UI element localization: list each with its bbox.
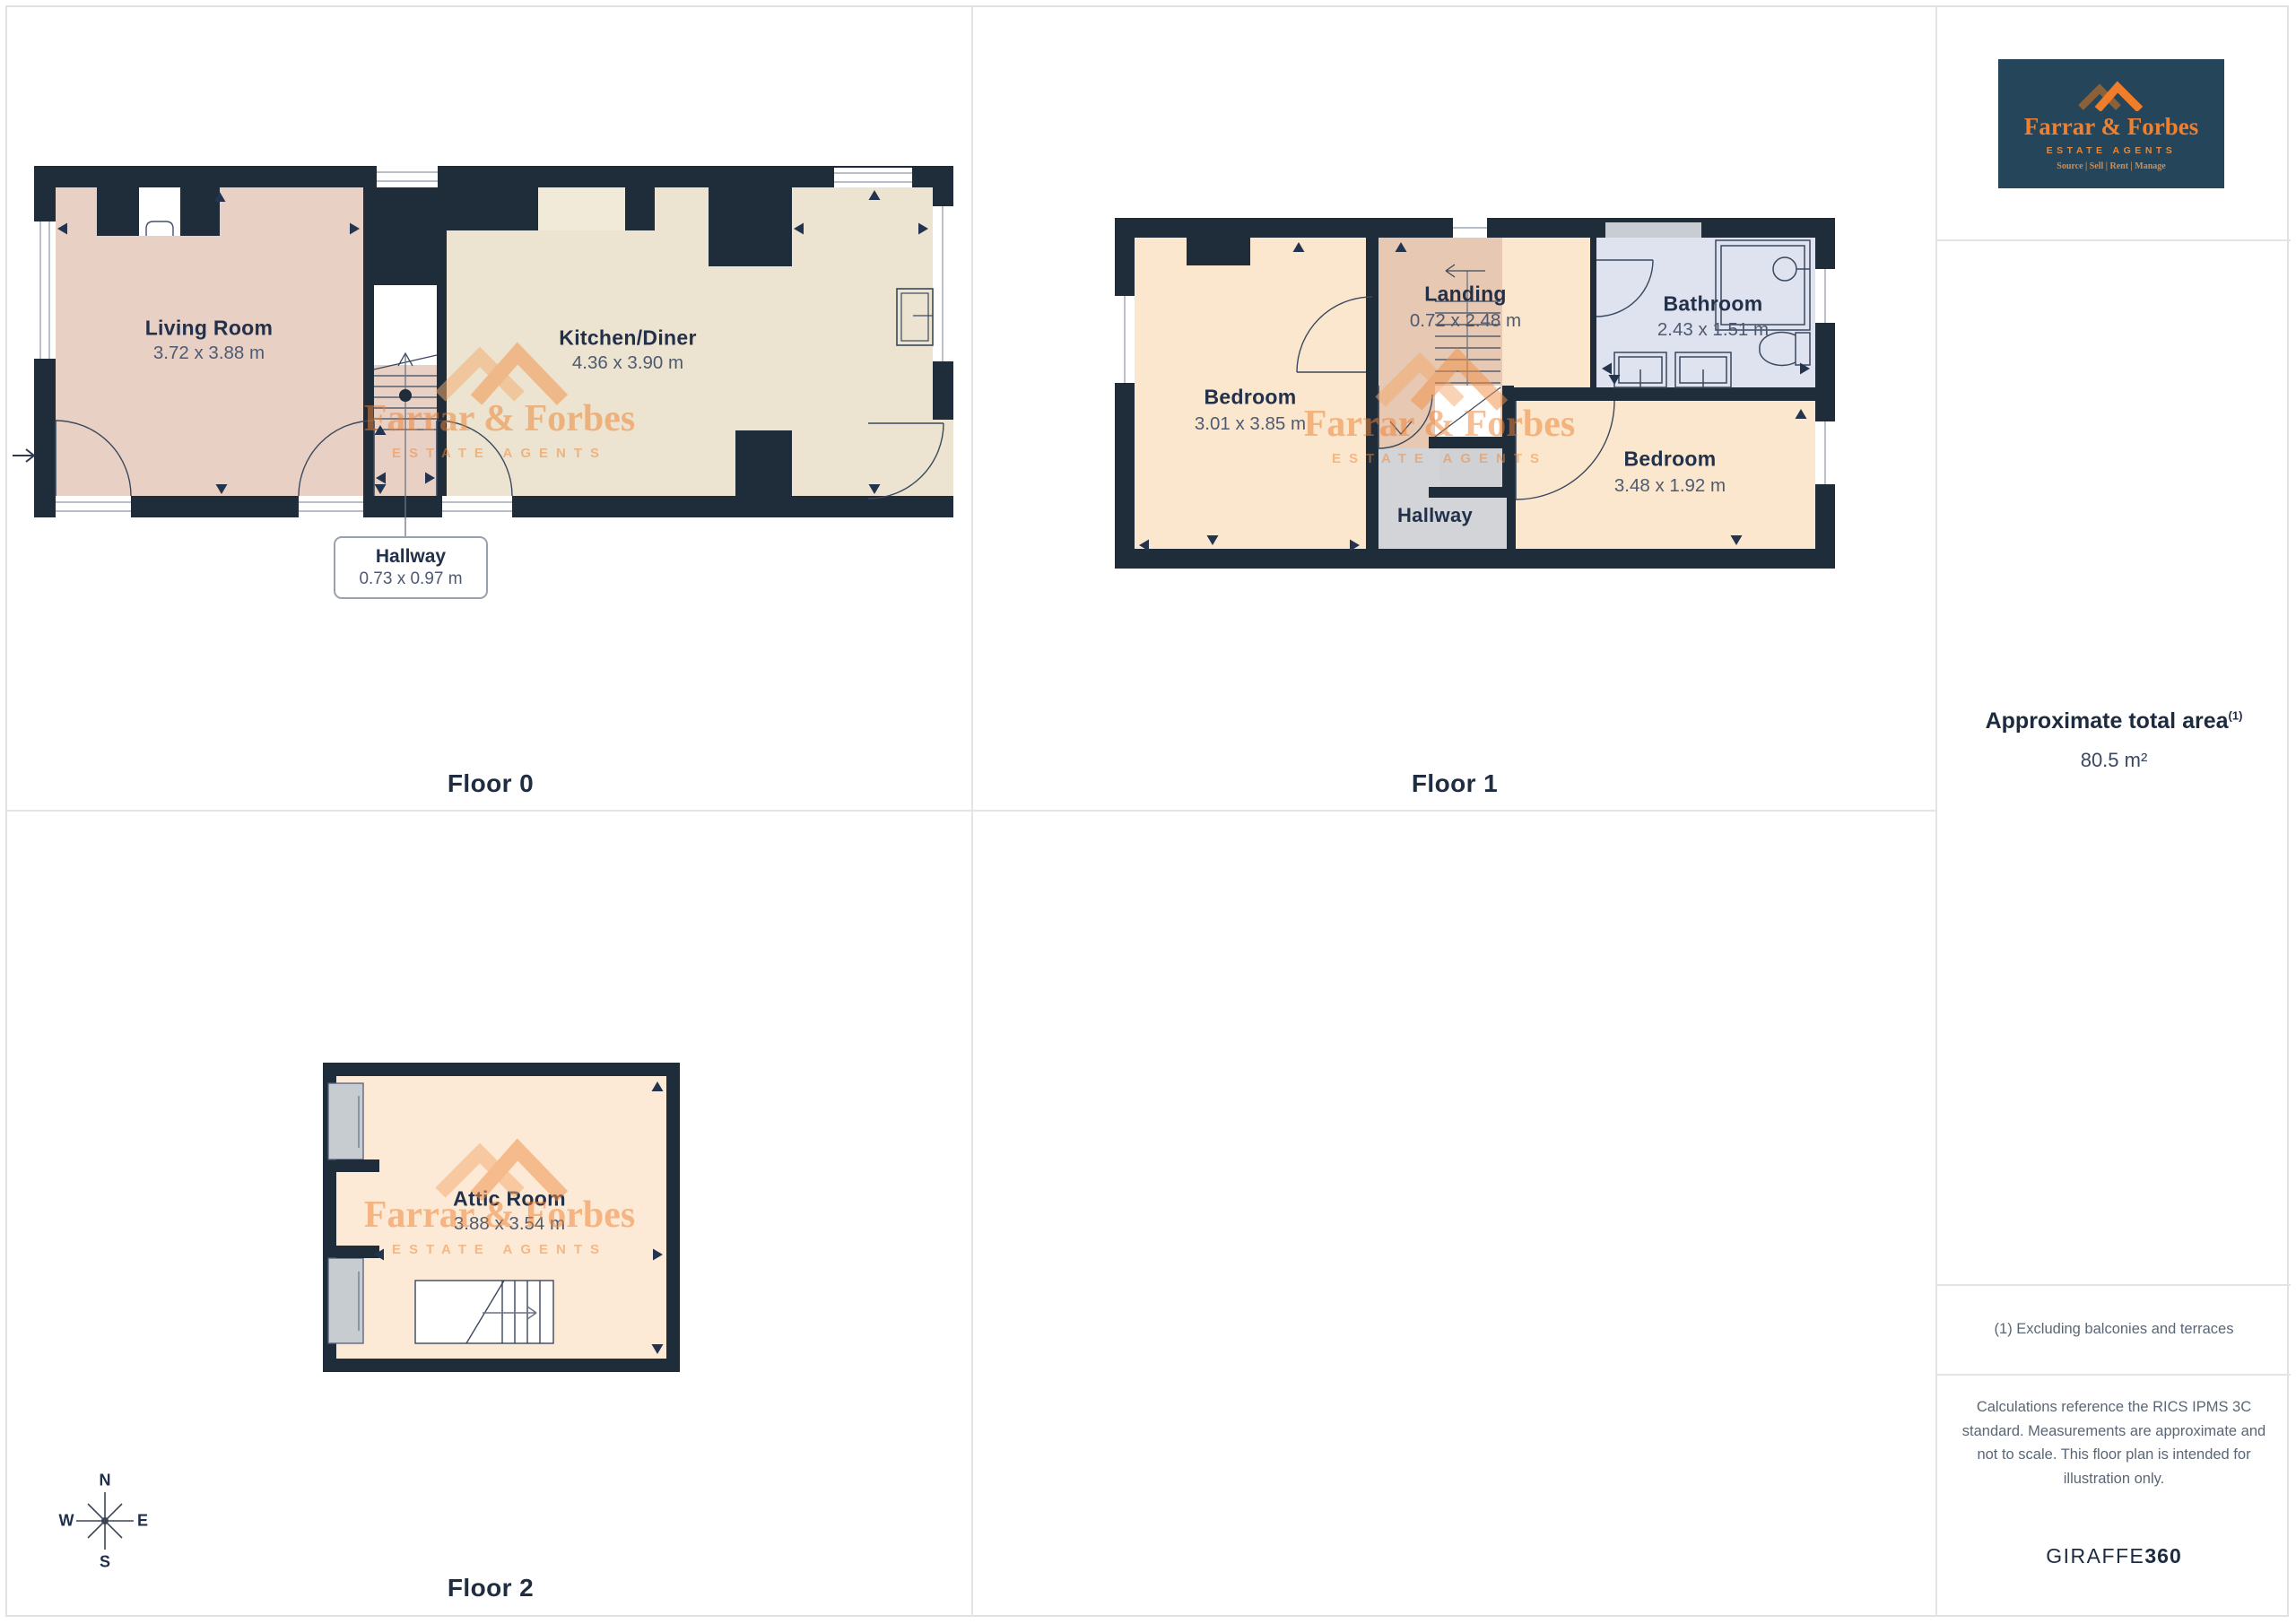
compass-east-label: E bbox=[137, 1512, 148, 1531]
giraffe360-suffix: 360 bbox=[2144, 1544, 2181, 1568]
floor-2-label: Floor 2 bbox=[448, 1574, 534, 1602]
room-label-hallway-f1: Hallway bbox=[1397, 504, 1473, 527]
room-label-attic-room: Attic Room bbox=[453, 1187, 566, 1211]
agency-subtitle: ESTATE AGENTS bbox=[2047, 145, 2177, 156]
room-label-living-room: Living Room bbox=[145, 317, 274, 341]
roof-logo-icon bbox=[2070, 77, 2152, 111]
room-dims-kitchen-diner: 4.36 x 3.90 m bbox=[572, 352, 683, 374]
floorplan-graphics bbox=[0, 0, 2296, 1624]
agency-logo: Farrar & Forbes ESTATE AGENTS Source | S… bbox=[1998, 59, 2224, 188]
room-dims-bedroom-right: 3.48 x 1.92 m bbox=[1614, 475, 1726, 497]
total-area-heading-text: Approximate total area bbox=[1986, 708, 2229, 734]
agency-tagline: Source | Sell | Rent | Manage bbox=[2057, 161, 2165, 171]
agency-name: Farrar & Forbes bbox=[2024, 115, 2198, 139]
footnote-block: (1) Excluding balconies and terraces bbox=[1937, 1285, 2291, 1374]
footnote-text: (1) Excluding balconies and terraces bbox=[1995, 1321, 2234, 1338]
hallway-callout: Hallway 0.73 x 0.97 m bbox=[334, 536, 488, 599]
floorplan-sheet: Living Room 3.72 x 3.88 m Kitchen/Diner … bbox=[0, 0, 2296, 1624]
room-label-kitchen-diner: Kitchen/Diner bbox=[559, 326, 696, 351]
room-dims-landing: 0.72 x 2.48 m bbox=[1410, 310, 1521, 332]
giraffe360-name: GIRAFFE bbox=[2046, 1544, 2144, 1568]
room-label-bedroom-right: Bedroom bbox=[1623, 447, 1716, 472]
compass-south-label: S bbox=[100, 1553, 110, 1572]
room-label-landing: Landing bbox=[1424, 282, 1507, 307]
total-area-note-ref: (1) bbox=[2229, 709, 2243, 723]
room-label-bedroom-left: Bedroom bbox=[1204, 386, 1296, 410]
room-dims-hallway-f0: 0.73 x 0.97 m bbox=[359, 569, 462, 590]
compass-rose-icon bbox=[76, 1492, 134, 1550]
total-area-value: 80.5 m² bbox=[1937, 749, 2291, 772]
room-dims-living-room: 3.72 x 3.88 m bbox=[153, 343, 265, 364]
total-area-heading: Approximate total area(1) bbox=[1937, 708, 2291, 734]
entry-arrow-icon bbox=[13, 449, 34, 462]
compass-north-label: N bbox=[100, 1472, 111, 1490]
disclaimer-text: Calculations reference the RICS IPMS 3C … bbox=[1957, 1395, 2271, 1491]
room-label-hallway-f0: Hallway bbox=[376, 545, 446, 569]
room-dims-bathroom: 2.43 x 1.51 m bbox=[1657, 319, 1769, 341]
room-label-bathroom: Bathroom bbox=[1663, 292, 1762, 317]
giraffe360-brand: GIRAFFE360 bbox=[1937, 1544, 2291, 1568]
compass-west-label: W bbox=[59, 1512, 74, 1531]
floor2-stairs bbox=[415, 1281, 553, 1343]
floor-0-label: Floor 0 bbox=[448, 769, 534, 798]
total-area-block: Approximate total area(1) 80.5 m² bbox=[1937, 708, 2291, 772]
room-dims-attic-room: 3.88 x 3.54 m bbox=[454, 1213, 565, 1235]
floor-1-label: Floor 1 bbox=[1412, 769, 1498, 798]
room-dims-bedroom-left: 3.01 x 3.85 m bbox=[1195, 413, 1306, 435]
